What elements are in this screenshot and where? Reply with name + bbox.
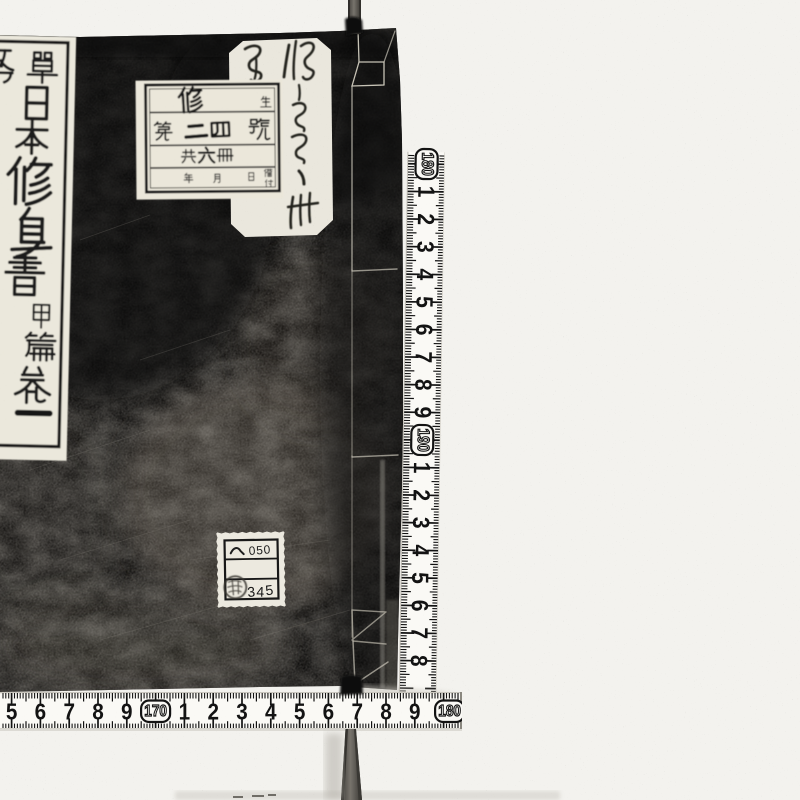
svg-text:1: 1 bbox=[179, 698, 191, 724]
svg-text:8: 8 bbox=[406, 655, 432, 667]
svg-text:3: 3 bbox=[247, 583, 256, 600]
svg-text:7: 7 bbox=[406, 627, 432, 639]
svg-text:6: 6 bbox=[35, 698, 47, 724]
svg-text:9: 9 bbox=[409, 698, 421, 724]
svg-text:170: 170 bbox=[144, 703, 167, 720]
svg-text:180: 180 bbox=[418, 152, 437, 176]
svg-text:8: 8 bbox=[410, 379, 436, 391]
svg-text:7: 7 bbox=[351, 698, 363, 724]
svg-text:050: 050 bbox=[248, 542, 271, 558]
svg-text:7: 7 bbox=[63, 698, 75, 724]
svg-text:4: 4 bbox=[265, 698, 277, 724]
svg-text:5: 5 bbox=[294, 698, 306, 724]
svg-text:8: 8 bbox=[92, 698, 104, 724]
svg-text:4: 4 bbox=[412, 268, 438, 281]
svg-text:3: 3 bbox=[412, 241, 438, 253]
svg-text:2: 2 bbox=[207, 698, 219, 724]
svg-text:1: 1 bbox=[409, 462, 435, 474]
svg-text:3: 3 bbox=[408, 517, 434, 529]
svg-text:5: 5 bbox=[411, 296, 437, 308]
svg-text:5: 5 bbox=[407, 572, 433, 584]
svg-text:2: 2 bbox=[413, 213, 439, 225]
svg-text:6: 6 bbox=[323, 698, 335, 724]
svg-text:9: 9 bbox=[409, 406, 435, 418]
svg-text:5: 5 bbox=[6, 698, 18, 724]
svg-text:6: 6 bbox=[411, 324, 437, 336]
svg-text:2: 2 bbox=[408, 489, 434, 501]
svg-text:1: 1 bbox=[413, 186, 439, 198]
svg-text:4: 4 bbox=[407, 544, 433, 557]
svg-text:180: 180 bbox=[438, 703, 461, 720]
svg-text:9: 9 bbox=[121, 698, 133, 724]
svg-text:190: 190 bbox=[413, 428, 432, 452]
svg-text:3: 3 bbox=[236, 698, 248, 724]
svg-text:8: 8 bbox=[380, 698, 392, 724]
svg-text:7: 7 bbox=[410, 351, 436, 363]
svg-text:4: 4 bbox=[256, 583, 265, 599]
svg-text:6: 6 bbox=[406, 599, 432, 611]
